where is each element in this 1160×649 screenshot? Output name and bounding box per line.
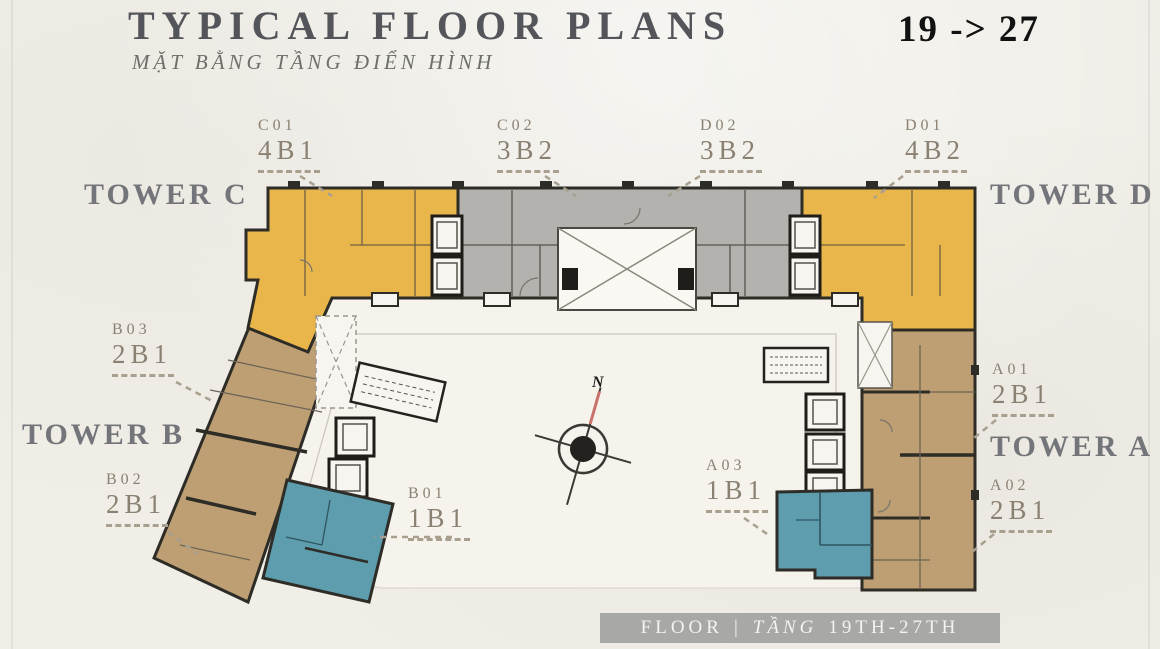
tower-label-a: TOWER A — [990, 430, 1153, 464]
unit-code: B02 — [106, 472, 168, 488]
unit-type: 2B1 — [990, 497, 1052, 524]
unit-type: 1B1 — [408, 505, 470, 532]
unit-label-d01: D01 4B2 — [905, 118, 967, 173]
leader-dash — [905, 170, 967, 173]
leader-dash — [497, 170, 559, 173]
unit-label-b01: B01 1B1 — [408, 486, 470, 541]
unit-label-d02: D02 3B2 — [700, 118, 762, 173]
tower-label-b: TOWER B — [22, 418, 185, 452]
unit-type: 4B1 — [258, 137, 320, 164]
central-lobby — [558, 228, 696, 310]
unit-code: B03 — [112, 322, 174, 338]
compass-north-label: N — [592, 374, 604, 392]
leader-dash — [706, 510, 768, 513]
unit-label-b02: B02 2B1 — [106, 472, 168, 527]
leader-dash — [990, 530, 1052, 533]
unit-code: C01 — [258, 118, 320, 134]
unit-b01-shape — [263, 480, 393, 602]
unit-code: D01 — [905, 118, 967, 134]
unit-type: 4B2 — [905, 137, 967, 164]
unit-type: 3B2 — [497, 137, 559, 164]
unit-type: 2B1 — [992, 381, 1054, 408]
leader-dash — [408, 538, 470, 541]
unit-code: D02 — [700, 118, 762, 134]
unit-code: A01 — [992, 362, 1054, 378]
unit-label-a01: A01 2B1 — [992, 362, 1054, 417]
leader-dash — [992, 414, 1054, 417]
unit-code: A03 — [706, 458, 768, 474]
unit-label-a03: A03 1B1 — [706, 458, 768, 513]
unit-code: C02 — [497, 118, 559, 134]
unit-a03-shape — [777, 490, 872, 578]
elevator-core-right — [790, 216, 820, 295]
unit-type: 3B2 — [700, 137, 762, 164]
unit-code: A02 — [990, 478, 1052, 494]
brochure-page: TYPICAL FLOOR PLANS MẶT BẰNG TẦNG ĐIỂN H… — [0, 0, 1160, 649]
unit-label-c02: C02 3B2 — [497, 118, 559, 173]
unit-label-a02: A02 2B1 — [990, 478, 1052, 533]
tower-label-c: TOWER C — [84, 178, 249, 212]
unit-type: 1B1 — [706, 477, 768, 504]
leader-dash — [700, 170, 762, 173]
unit-label-b03: B03 2B1 — [112, 322, 174, 377]
footer-range: 19TH-27TH — [828, 617, 959, 639]
footer-floor-vi: TẦNG — [753, 617, 818, 639]
unit-type: 2B1 — [112, 341, 174, 368]
leader-dash — [258, 170, 320, 173]
tower-label-d: TOWER D — [990, 178, 1155, 212]
floor-plan — [0, 0, 1160, 649]
floor-range-banner: FLOOR | TẦNG 19TH-27TH — [600, 613, 1000, 643]
unit-label-c01: C01 4B1 — [258, 118, 320, 173]
leader-dash — [106, 524, 168, 527]
footer-floor-en: FLOOR — [641, 617, 723, 639]
elevator-core-left — [432, 216, 462, 295]
footer-divider: | — [734, 617, 742, 639]
leader-dash — [112, 374, 174, 377]
unit-code: B01 — [408, 486, 470, 502]
unit-type: 2B1 — [106, 491, 168, 518]
